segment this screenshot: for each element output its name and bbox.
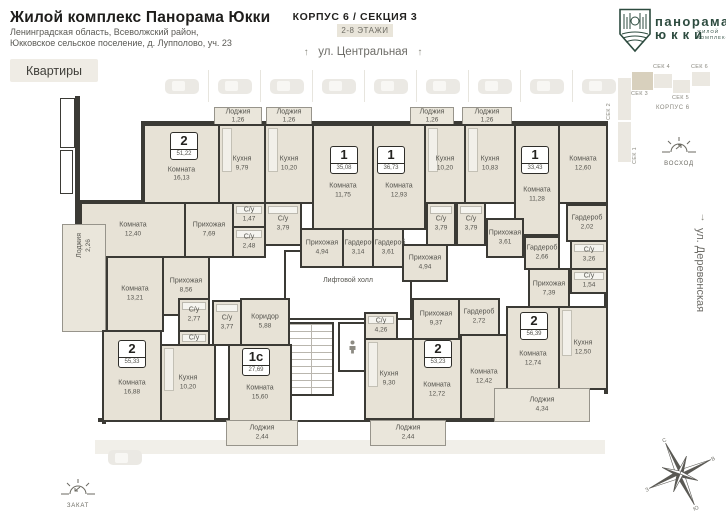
minimap-section-сек5[interactable] bbox=[673, 80, 690, 93]
room-label: Кухня9,79 bbox=[221, 156, 263, 173]
parking-spot bbox=[156, 70, 208, 102]
room-label: Лоджия1,26 bbox=[268, 108, 310, 125]
logo-shield-icon bbox=[618, 8, 652, 53]
room-прихожая: Прихожая4,94 bbox=[402, 244, 448, 282]
room-с/у: С/у2,48 bbox=[232, 226, 266, 258]
neighbor-room bbox=[60, 98, 75, 148]
room-label: Кухня10,20 bbox=[267, 156, 311, 173]
room-label: Комната11,75 bbox=[315, 183, 371, 200]
room-label: С/у3,79 bbox=[459, 216, 484, 233]
apartment-badge[interactable]: 253,23 bbox=[424, 340, 452, 368]
korpus-section-title: КОРПУС 6 / СЕКЦИЯ 3 bbox=[270, 11, 440, 23]
arrow-up-icon: ↑ bbox=[304, 47, 309, 58]
room-label: Комната16,13 bbox=[146, 166, 216, 183]
room-с/у: С/у3,79 bbox=[426, 202, 456, 246]
room-лоджия: Лоджия2,44 bbox=[226, 420, 298, 446]
room-label: Лоджия2,44 bbox=[228, 425, 295, 442]
apartments-button[interactable]: Квартиры bbox=[10, 59, 98, 82]
complex-title: Жилой комплекс Панорама Юкки bbox=[10, 9, 270, 27]
compass-rose: С В Ю З bbox=[642, 436, 718, 517]
floor-plan-page: { "header": { "title": "Жилой комплекс П… bbox=[0, 0, 726, 513]
room-label: Комната12,93 bbox=[375, 183, 423, 200]
room-label: Кухня10,20 bbox=[163, 375, 213, 392]
room-label: Прихожая7,39 bbox=[531, 281, 568, 298]
person-icon bbox=[348, 340, 357, 354]
car-icon bbox=[218, 79, 252, 94]
room-гардероб: Гардероб2,02 bbox=[566, 204, 608, 242]
svg-text:В: В bbox=[711, 456, 717, 463]
room-прихожая: Прихожая7,39 bbox=[528, 268, 570, 310]
room-комната: Комната13,21 bbox=[106, 256, 164, 332]
room-кухня: Кухня9,79 bbox=[218, 124, 266, 204]
room-лоджия: Лоджия4,34 bbox=[494, 388, 590, 422]
room-с/у: С/у4,26 bbox=[364, 312, 398, 340]
room-label: С/у3,79 bbox=[267, 216, 300, 233]
room-label: С/у1,47 bbox=[235, 207, 264, 224]
room-с/у: С/у3,79 bbox=[456, 202, 486, 246]
room-label: Лоджия2,26 bbox=[76, 233, 93, 258]
street-label-right: ул. Деревенская bbox=[694, 228, 706, 312]
apartment-badge[interactable]: 255,33 bbox=[118, 340, 146, 368]
car-icon bbox=[165, 79, 199, 94]
room-лоджия: Лоджия2,26 bbox=[62, 224, 106, 332]
sunrise-marker: ВОСХОД bbox=[656, 134, 702, 167]
room-label: Комната12,42 bbox=[463, 369, 505, 386]
room-label: С/у3,77 bbox=[215, 315, 240, 332]
logo-subtext: жилойкомплекс bbox=[697, 29, 726, 42]
room-label: С/у3,79 bbox=[429, 216, 454, 233]
parking-spot bbox=[468, 70, 521, 102]
room-label: Кухня12,50 bbox=[561, 340, 605, 357]
room-label: Комната12,72 bbox=[415, 381, 459, 398]
car-icon bbox=[426, 79, 460, 94]
room-label: Комната16,88 bbox=[105, 380, 159, 397]
minimap-section-label: СЕК 5 bbox=[672, 95, 689, 101]
room-label: Лоджия2,44 bbox=[372, 425, 443, 442]
room-label: С/у2,48 bbox=[235, 234, 264, 251]
floors-badge: 2-8 ЭТАЖИ bbox=[337, 24, 393, 37]
room-с/у: С/у3,77 bbox=[212, 300, 242, 346]
apartment-badge[interactable]: 133,43 bbox=[521, 146, 549, 174]
room-label: Прихожая7,69 bbox=[187, 222, 231, 239]
car-icon bbox=[530, 79, 564, 94]
svg-text:С: С bbox=[662, 437, 668, 444]
room-label: Гардероб2,66 bbox=[527, 245, 558, 262]
room-с/у: С/у3,79 bbox=[264, 202, 302, 246]
room-label: Гардероб2,72 bbox=[461, 309, 498, 326]
room-label: С/у4,26 bbox=[367, 318, 396, 335]
room-label: Комната12,74 bbox=[509, 351, 557, 368]
street-label-top: ↑ ул. Центральная ↑ bbox=[283, 46, 443, 58]
room-комната: Комната12,60 bbox=[558, 124, 608, 204]
address-line-1: Ленинградская область, Всеволжский район… bbox=[10, 27, 199, 37]
address-line-2: Юкковское сельское поселение, д. Лупполо… bbox=[10, 38, 232, 48]
room-с/у: С/у2,77 bbox=[178, 298, 210, 332]
room-label: Комната15,60 bbox=[231, 385, 289, 402]
ground-strip bbox=[95, 440, 605, 454]
room-label: Лоджия1,26 bbox=[216, 108, 260, 125]
car-icon bbox=[582, 79, 616, 94]
room-label: Коридор5,88 bbox=[243, 314, 287, 331]
arrow-down-icon: ↓ bbox=[700, 212, 705, 223]
parking-spot bbox=[312, 70, 365, 102]
room-с/у: С/у1,47 bbox=[232, 202, 266, 228]
room-label: Прихожая4,94 bbox=[303, 240, 341, 257]
room-label: С/у2,77 bbox=[181, 307, 208, 324]
room-label: Гардероб3,61 bbox=[375, 240, 402, 257]
parking-spot bbox=[364, 70, 417, 102]
room-кухня: Кухня10,20 bbox=[424, 124, 466, 204]
svg-text:Ю: Ю bbox=[692, 505, 700, 512]
room-кухня: Кухня9,30 bbox=[364, 338, 414, 420]
minimap-section-сек6[interactable] bbox=[692, 72, 710, 86]
room-кухня: Кухня12,50 bbox=[558, 306, 608, 390]
car-icon bbox=[322, 79, 356, 94]
room-кухня: Кухня10,20 bbox=[160, 344, 216, 422]
room-кухня: Кухня10,20 bbox=[264, 124, 314, 204]
room-label: Лоджия4,34 bbox=[497, 397, 587, 414]
minimap-section-сек4[interactable] bbox=[654, 74, 672, 88]
room-label: Комната13,21 bbox=[109, 286, 161, 303]
minimap-section-label: СЕК 3 bbox=[631, 91, 648, 97]
apartment-badge[interactable]: 256,39 bbox=[520, 312, 548, 340]
sunset-icon bbox=[58, 476, 98, 498]
apartment-badge[interactable]: 1с27,69 bbox=[242, 348, 270, 376]
apartment-badge[interactable]: 135,08 bbox=[330, 146, 358, 174]
minimap-section-label: СЕК 6 bbox=[691, 64, 708, 70]
car-icon bbox=[270, 79, 304, 94]
room-label: Лоджия1,26 bbox=[412, 108, 452, 125]
minimap-section-сек3[interactable] bbox=[632, 72, 653, 90]
room-label: Кухня9,30 bbox=[367, 371, 411, 388]
room-комната: Комната12,93 bbox=[372, 124, 426, 230]
parking-spot bbox=[572, 70, 625, 102]
room-коридор: Коридор5,88 bbox=[240, 298, 290, 346]
room-лоджия: Лоджия2,44 bbox=[370, 420, 446, 446]
car-icon bbox=[478, 79, 512, 94]
room-гардероб: Гардероб2,66 bbox=[524, 236, 560, 270]
car-icon bbox=[108, 450, 142, 465]
minimap-section-сек1[interactable] bbox=[618, 122, 631, 162]
room-гардероб: Гардероб2,72 bbox=[458, 298, 500, 336]
sunrise-icon bbox=[659, 134, 699, 156]
elevator bbox=[338, 322, 366, 372]
room-label: Гардероб3,14 bbox=[345, 240, 372, 257]
room-прихожая: Прихожая3,61 bbox=[486, 218, 524, 258]
parking-spot bbox=[416, 70, 469, 102]
car-icon bbox=[374, 79, 408, 94]
room-прихожая: Прихожая9,37 bbox=[412, 298, 460, 340]
room-комната: Комната11,75 bbox=[312, 124, 374, 230]
sunset-marker: ЗАКАТ bbox=[50, 476, 106, 509]
brand-logo bbox=[618, 8, 652, 58]
room-прихожая: Прихожая7,69 bbox=[184, 202, 234, 258]
room-кухня: Кухня10,83 bbox=[464, 124, 516, 204]
room-гардероб: Гардероб3,14 bbox=[342, 228, 374, 268]
minimap-korpus-label: КОРПУС 6 bbox=[656, 105, 690, 111]
room-label: Прихожая3,61 bbox=[489, 230, 522, 247]
room-label: Гардероб2,02 bbox=[569, 215, 606, 232]
arrow-up-icon: ↑ bbox=[417, 47, 422, 58]
room-label: Кухня10,20 bbox=[427, 156, 464, 173]
room-label: Лоджия1,26 bbox=[464, 108, 510, 125]
neighbor-room bbox=[60, 150, 73, 194]
apartment-badge[interactable]: 251,22 bbox=[170, 132, 198, 160]
room-label: С/у1,54 bbox=[573, 273, 606, 290]
stairs bbox=[288, 322, 334, 396]
parking-spot bbox=[208, 70, 261, 102]
room-label: Прихожая8,56 bbox=[165, 278, 207, 295]
compass-icon: С В Ю З bbox=[642, 436, 718, 512]
apartment-badge[interactable]: 136,73 bbox=[377, 146, 405, 174]
room-прихожая: Прихожая4,94 bbox=[300, 228, 344, 268]
room-label: Комната11,28 bbox=[517, 187, 557, 204]
room-с/у: С/у1,54 bbox=[570, 268, 608, 294]
minimap-section-label: СЕК 4 bbox=[653, 64, 670, 70]
room-label: Прихожая4,94 bbox=[405, 255, 445, 272]
parking-spot bbox=[520, 70, 573, 102]
room-label: С/у3,26 bbox=[573, 247, 606, 264]
room-с/у: С/у3,26 bbox=[570, 240, 608, 270]
room-label: Прихожая9,37 bbox=[415, 311, 457, 328]
room-label: Кухня10,83 bbox=[467, 156, 513, 173]
minimap-section-label: СЕК 1 bbox=[632, 124, 638, 164]
room-label: Комната12,60 bbox=[561, 156, 605, 173]
room-гардероб: Гардероб3,61 bbox=[372, 228, 404, 268]
parking-spot bbox=[260, 70, 313, 102]
